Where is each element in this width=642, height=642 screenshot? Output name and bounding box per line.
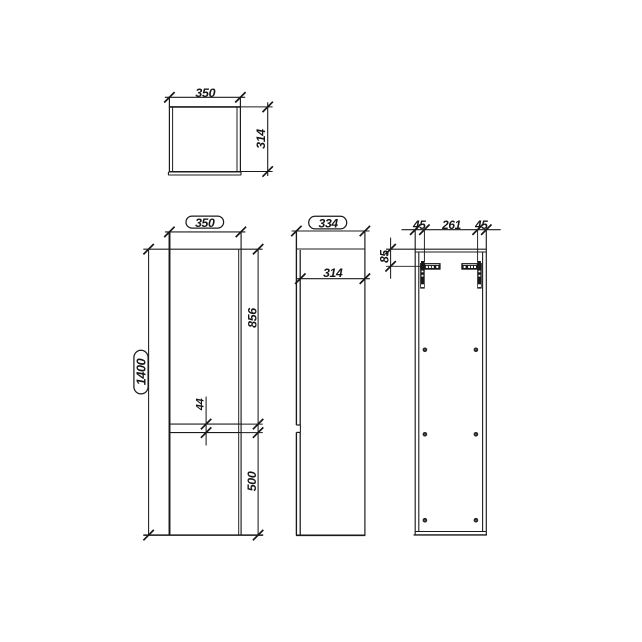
- svg-text:500: 500: [245, 471, 259, 491]
- svg-text:350: 350: [195, 86, 215, 100]
- svg-text:261: 261: [441, 218, 461, 232]
- svg-text:85: 85: [378, 250, 392, 263]
- svg-text:314: 314: [323, 266, 343, 280]
- svg-text:44: 44: [194, 398, 206, 411]
- svg-text:314: 314: [254, 129, 268, 149]
- svg-text:334: 334: [318, 216, 338, 230]
- svg-text:350: 350: [195, 216, 215, 230]
- svg-text:1400: 1400: [135, 358, 149, 385]
- svg-text:856: 856: [245, 308, 259, 328]
